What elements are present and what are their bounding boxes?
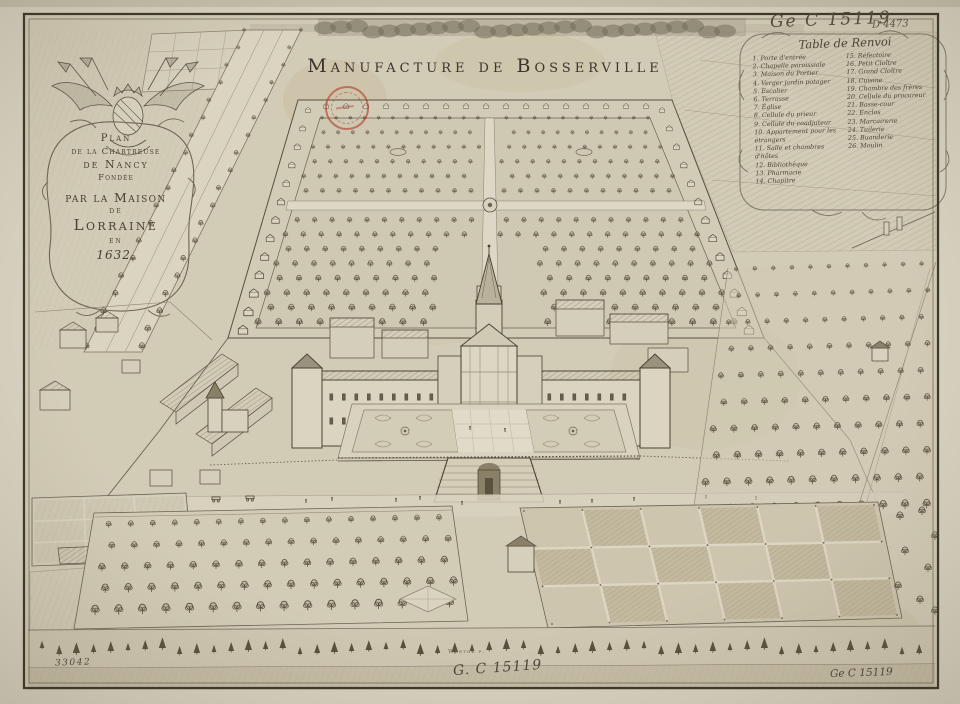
engraving-page: Manufacture de Bosserville Plan de la Ch… bbox=[0, 0, 960, 704]
legend-cartouche: Table de Renvoi 1. Porte d'entrée 2. Cha… bbox=[754, 36, 936, 184]
engraver-signature: Werthe f. bbox=[448, 649, 486, 655]
cartouche-line: en bbox=[40, 237, 192, 245]
cartouche-line: de la Chartreuse bbox=[40, 148, 192, 157]
shelfmark-bottom-right: Ge C 15119 bbox=[830, 666, 893, 680]
engraving-title: Manufacture de Bosserville bbox=[245, 55, 725, 77]
cartouche-line: Fondée bbox=[40, 174, 192, 183]
legend-entry: 26. Moulin bbox=[848, 141, 937, 152]
cartouche-line: Lorraine bbox=[40, 218, 192, 234]
cartouche-line: Plan bbox=[40, 134, 192, 145]
cartouche-line: de Nancy bbox=[40, 159, 192, 171]
legend-right-column: 15. Réfectoire 16. Petit Cloître 17. Gra… bbox=[846, 51, 938, 185]
inventory-number-top-right: D 4473 bbox=[872, 18, 909, 30]
cartouche-line: par la Maison bbox=[40, 191, 192, 204]
legend-title: Table de Renvoi bbox=[754, 33, 936, 53]
number-bottom-left: 33042 bbox=[55, 657, 91, 668]
legend-left-column: 1. Porte d'entrée 2. Chapelle paroissial… bbox=[752, 53, 844, 187]
cartouche-line: de bbox=[40, 207, 192, 215]
title-cartouche: Plan de la Chartreuse de Nancy Fondée pa… bbox=[40, 131, 192, 264]
cartouche-line: 1632. bbox=[40, 249, 192, 262]
